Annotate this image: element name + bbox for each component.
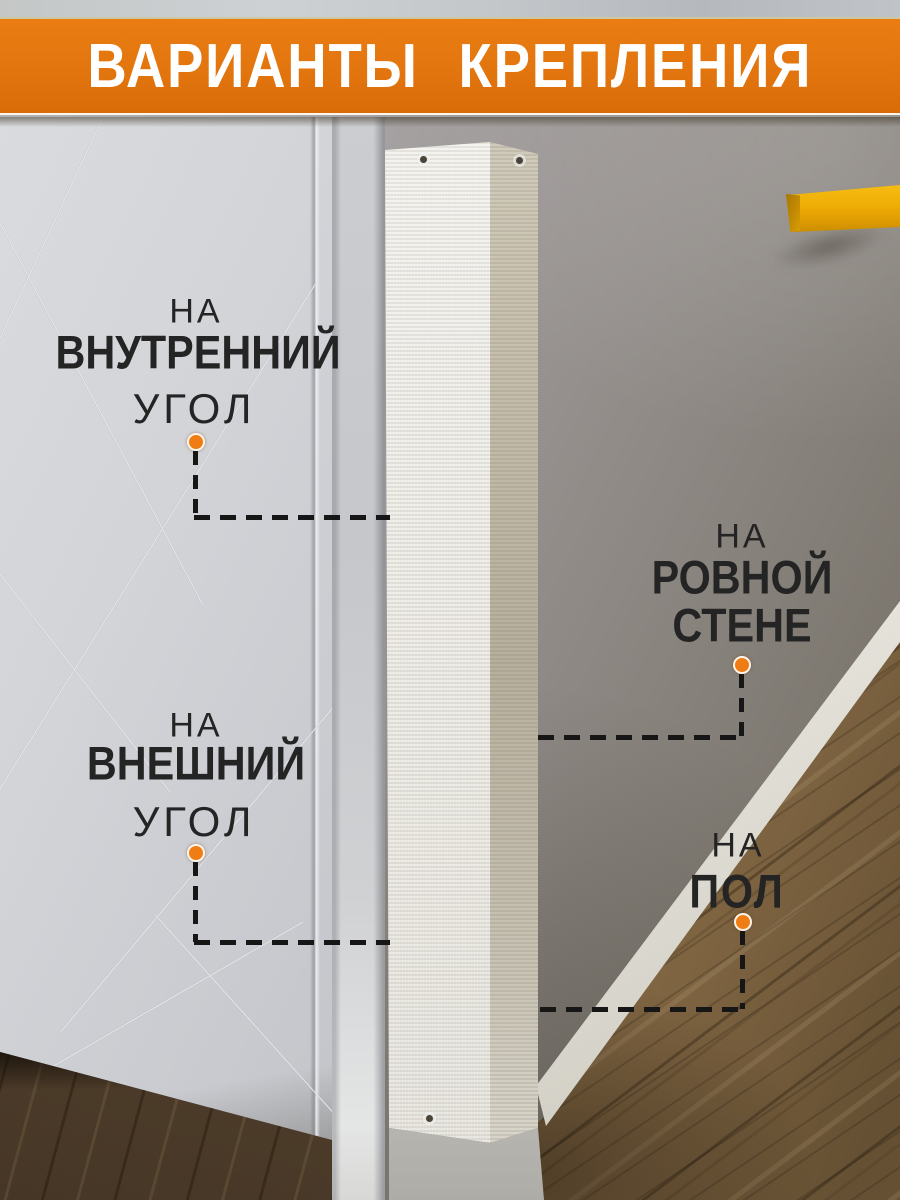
callout-text: РОВНОЙ <box>652 550 833 605</box>
callout-text: ПОЛ <box>689 864 784 919</box>
panel-groove <box>310 117 320 1200</box>
page-title: ВАРИАНТЫ КРЕПЛЕНИЯ <box>88 31 813 102</box>
leader-line <box>740 931 745 1009</box>
callout-text: СТЕНЕ <box>672 598 811 653</box>
photo-top-strip <box>0 0 900 19</box>
screw-hole-bottom <box>426 1115 433 1122</box>
leader-line <box>193 451 198 517</box>
leader-line <box>540 1007 746 1012</box>
screw-hole-top-side <box>516 157 523 164</box>
leader-line <box>538 735 745 740</box>
callout-text: УГОЛ <box>133 798 256 846</box>
marker-dot-icon <box>187 433 205 451</box>
mounting-options-infographic: ВАРИАНТЫ КРЕПЛЕНИЯ НА ВНУТРЕННИЙ УГОЛ НА… <box>0 0 900 1200</box>
leader-line <box>739 674 744 737</box>
white-panel <box>0 117 332 1200</box>
panel-edge-strip <box>332 117 385 1200</box>
panel-scratch-line <box>0 117 125 343</box>
leader-line <box>194 515 390 520</box>
callout-text: ВНЕШНИЙ <box>87 736 305 791</box>
banner-shadow <box>0 117 900 127</box>
leader-line <box>193 862 198 942</box>
screw-hole-top-front <box>420 156 427 163</box>
marker-dot-icon <box>734 913 752 931</box>
header-banner: ВАРИАНТЫ КРЕПЛЕНИЯ <box>0 19 900 115</box>
callout-text: ВНУТРЕННИЙ <box>55 325 340 380</box>
callout-text: УГОЛ <box>133 385 256 433</box>
marker-dot-icon <box>733 656 751 674</box>
leader-line <box>194 940 390 945</box>
callout-text: НА <box>711 827 764 866</box>
marker-dot-icon <box>187 844 205 862</box>
